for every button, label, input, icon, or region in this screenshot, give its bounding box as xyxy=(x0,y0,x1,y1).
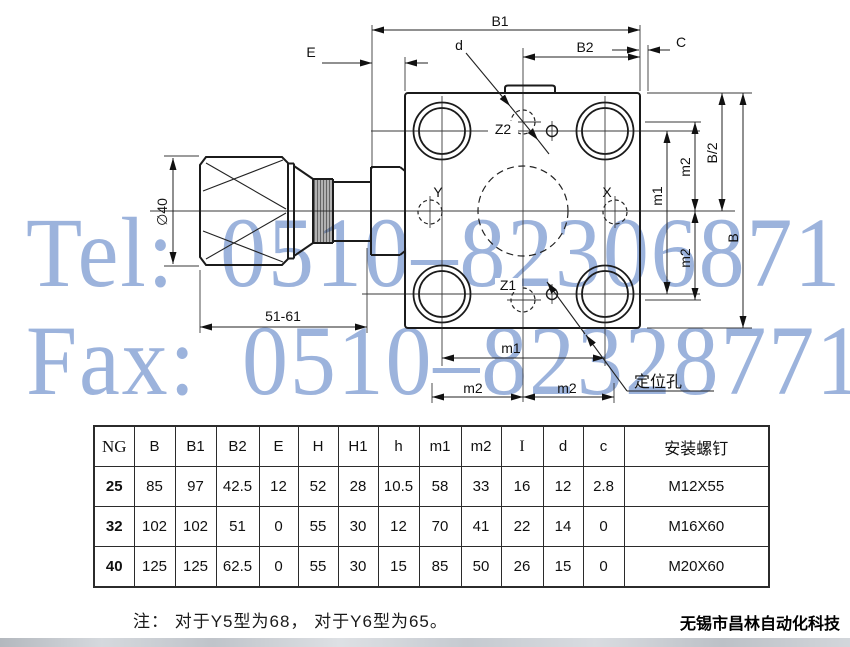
table-cell: 15 xyxy=(378,547,419,588)
table-cell: 102 xyxy=(134,507,175,547)
column-header: d xyxy=(543,426,583,467)
table-cell: M16X60 xyxy=(624,507,769,547)
bottom-edge-strip xyxy=(0,638,850,647)
locating-hole-label: 定位孔 xyxy=(634,373,682,391)
column-header: H xyxy=(298,426,338,467)
table-cell: 0 xyxy=(259,507,298,547)
centerlines xyxy=(150,25,752,403)
dim-label-51-61: 51-61 xyxy=(265,308,301,324)
table-cell: 125 xyxy=(134,547,175,588)
dim-label-phi40: ∅40 xyxy=(154,198,170,226)
table-cell: 102 xyxy=(175,507,216,547)
column-header: m1 xyxy=(419,426,461,467)
table-cell: 12 xyxy=(259,467,298,507)
spec-table: NGBB1B2EHH1hm1m2Idc安装螺钉 25859742.5125228… xyxy=(93,425,770,588)
table-cell: 97 xyxy=(175,467,216,507)
company-name: 无锡市昌林自动化科技 xyxy=(655,610,840,634)
column-header: B2 xyxy=(216,426,259,467)
table-cell: 41 xyxy=(461,507,501,547)
port-label-z1: Z1 xyxy=(500,277,517,293)
table-cell: 85 xyxy=(419,547,461,588)
dim-label-b: B xyxy=(725,233,741,242)
column-header: 安装螺钉 xyxy=(624,426,769,467)
table-cell: 16 xyxy=(501,467,543,507)
dim-label-b1: B1 xyxy=(491,13,508,29)
table-cell: 62.5 xyxy=(216,547,259,588)
table-cell: 26 xyxy=(501,547,543,588)
port-label-x: X xyxy=(602,184,612,200)
top-tab xyxy=(505,86,555,94)
table-cell: 70 xyxy=(419,507,461,547)
dim-label-d: d xyxy=(455,37,463,53)
column-header: m2 xyxy=(461,426,501,467)
table-cell: 55 xyxy=(298,507,338,547)
table-cell: M12X55 xyxy=(624,467,769,507)
table-cell: 2.8 xyxy=(583,467,624,507)
table-cell: 32 xyxy=(94,507,134,547)
table-cell: 22 xyxy=(501,507,543,547)
table-cell: 50 xyxy=(461,547,501,588)
table-cell: M20X60 xyxy=(624,547,769,588)
catalog-page: Tel: 0510–82306871 Fax: 0510–82328771 xyxy=(0,0,850,647)
table-cell: 10.5 xyxy=(378,467,419,507)
table-cell: 40 xyxy=(94,547,134,588)
table-cell: 0 xyxy=(583,507,624,547)
dim-label-m2-top: m2 xyxy=(677,157,693,177)
dim-label-m2-bl: m2 xyxy=(463,380,483,396)
port-label-z2: Z2 xyxy=(495,121,512,137)
table-cell: 28 xyxy=(338,467,378,507)
dim-label-m1-bottom: m1 xyxy=(501,340,521,356)
table-cell: 12 xyxy=(543,467,583,507)
table-cell: 0 xyxy=(583,547,624,588)
table-cell: 125 xyxy=(175,547,216,588)
table-cell: 30 xyxy=(338,507,378,547)
dim-label-c: C xyxy=(676,34,686,50)
table-cell: 15 xyxy=(543,547,583,588)
dimension-lines xyxy=(173,30,743,397)
dim-label-b-half: B/2 xyxy=(704,142,720,163)
dim-label-m2-br: m2 xyxy=(557,380,577,396)
table-cell: 51 xyxy=(216,507,259,547)
locating-holes xyxy=(547,126,558,300)
table-cell: 0 xyxy=(259,547,298,588)
table-row: 25859742.512522810.5583316122.8M12X55 xyxy=(94,467,769,507)
column-header: B xyxy=(134,426,175,467)
column-header: NG xyxy=(94,426,134,467)
column-header: B1 xyxy=(175,426,216,467)
table-cell: 85 xyxy=(134,467,175,507)
table-row: 4012512562.50553015855026150M20X60 xyxy=(94,547,769,588)
table-cell: 55 xyxy=(298,547,338,588)
note-text: 注： 对于Y5型为68， 对于Y6型为65。 xyxy=(133,607,448,632)
table-cell: 42.5 xyxy=(216,467,259,507)
dim-label-m1-right: m1 xyxy=(649,186,665,206)
technical-drawing: B1 B2 C E d m1 m2 B/2 m2 B m1 m2 m2 ∅40 … xyxy=(0,0,850,420)
table-cell: 12 xyxy=(378,507,419,547)
dim-label-m2-bottom: m2 xyxy=(677,248,693,268)
table-row: 32102102510553012704122140M16X60 xyxy=(94,507,769,547)
table-cell: 25 xyxy=(94,467,134,507)
dimension-labels: B1 B2 C E d m1 m2 B/2 m2 B m1 m2 m2 ∅40 … xyxy=(154,13,741,396)
table-cell: 58 xyxy=(419,467,461,507)
column-header: E xyxy=(259,426,298,467)
port-label-y: Y xyxy=(433,184,443,200)
table-cell: 33 xyxy=(461,467,501,507)
header-row: NGBB1B2EHH1hm1m2Idc安装螺钉 xyxy=(94,426,769,467)
column-header: H1 xyxy=(338,426,378,467)
column-header: c xyxy=(583,426,624,467)
table-cell: 52 xyxy=(298,467,338,507)
dim-label-b2: B2 xyxy=(576,39,593,55)
table-cell: 14 xyxy=(543,507,583,547)
column-header: I xyxy=(501,426,543,467)
table-cell: 30 xyxy=(338,547,378,588)
dim-label-e: E xyxy=(306,44,315,60)
bolt-holes xyxy=(414,103,634,323)
column-header: h xyxy=(378,426,419,467)
